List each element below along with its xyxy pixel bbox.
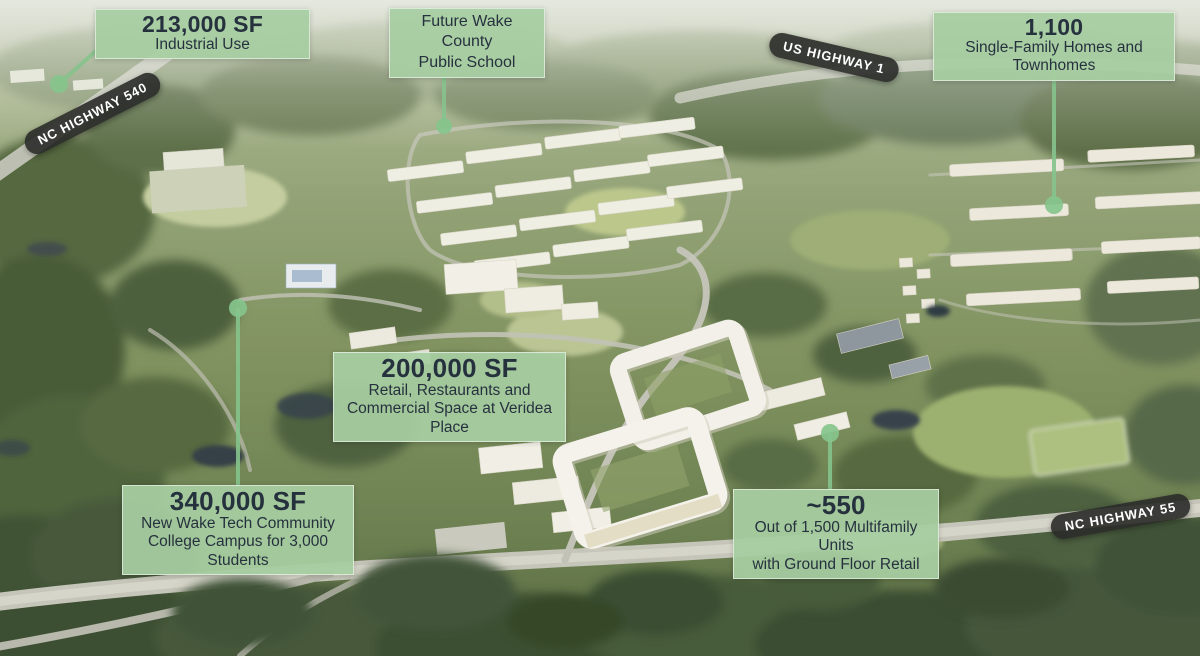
callout-line: Commercial Space at Veridea Place xyxy=(342,400,557,436)
callout-multifamily-units: ~550 Out of 1,500 Multifamily Units with… xyxy=(733,489,939,579)
callout-headline: 213,000 SF xyxy=(104,12,301,36)
callout-line: Retail, Restaurants and xyxy=(342,382,557,400)
callout-line: Out of 1,500 Multifamily Units xyxy=(742,519,930,555)
callout-line: with Ground Floor Retail xyxy=(742,556,930,574)
callout-headline: 1,100 xyxy=(942,15,1166,39)
callout-line: Public School xyxy=(398,52,536,73)
callout-headline: 340,000 SF xyxy=(131,488,345,515)
callout-wake-tech-campus: 340,000 SF New Wake Tech Community Colle… xyxy=(122,485,354,575)
callout-headline: 200,000 SF xyxy=(342,355,557,382)
callout-line: Single-Family Homes and Townhomes xyxy=(942,39,1166,76)
callout-line: Future Wake County xyxy=(398,11,536,52)
callout-headline: ~550 xyxy=(742,492,930,519)
callout-future-school: Future Wake County Public School xyxy=(389,8,545,78)
callout-single-family-homes: 1,100 Single-Family Homes and Townhomes xyxy=(933,12,1175,81)
callout-line: Industrial Use xyxy=(104,36,301,54)
callout-line: College Campus for 3,000 Students xyxy=(131,533,345,569)
callout-veridea-place-retail: 200,000 SF Retail, Restaurants and Comme… xyxy=(333,352,566,442)
aerial-masterplan-view: 213,000 SF Industrial Use Future Wake Co… xyxy=(0,0,1200,656)
callout-line: New Wake Tech Community xyxy=(131,515,345,533)
callout-industrial-use: 213,000 SF Industrial Use xyxy=(95,9,310,59)
